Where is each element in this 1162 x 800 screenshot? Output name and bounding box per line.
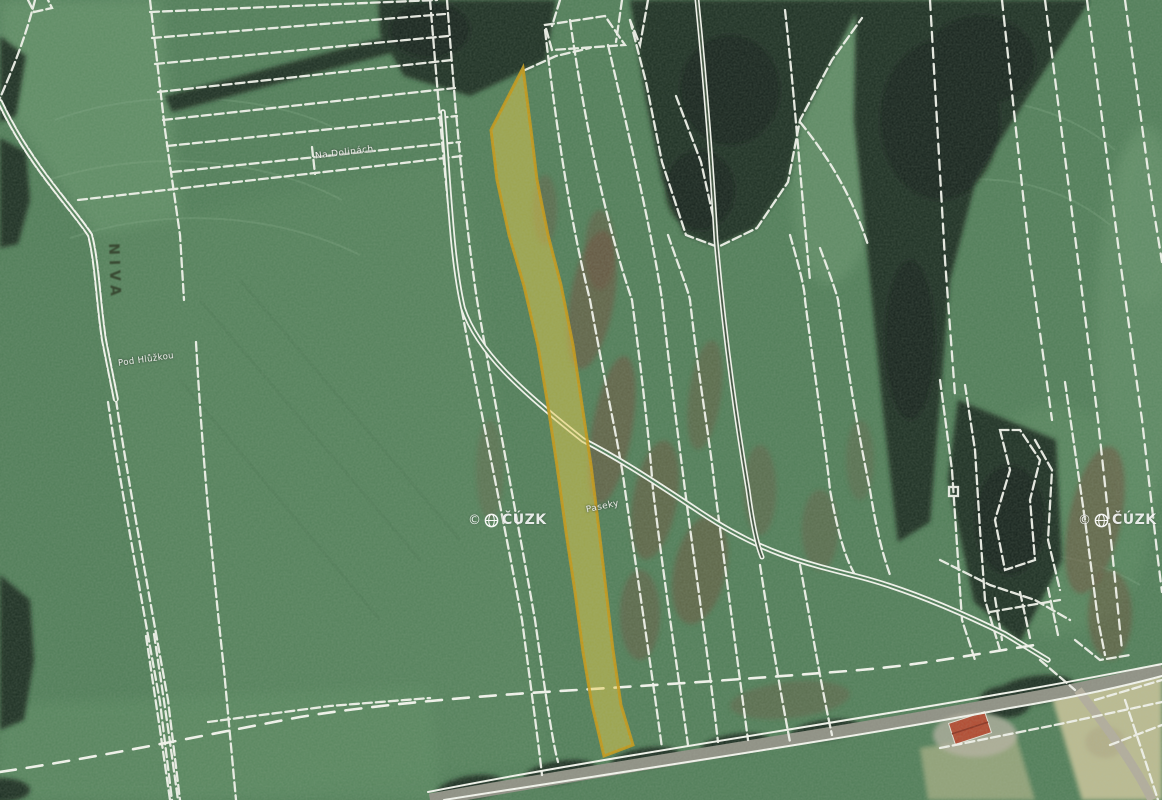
field-label-niva: NIVA [106,243,122,301]
map-canvas[interactable] [0,0,1162,800]
copyright-symbol: © [1078,513,1091,528]
cuzk-watermark-right: © ČÚZK [1078,512,1157,528]
map-viewport[interactable]: Na Dolinách Pod Hlůžkou NIVA Paseky © ČÚ… [0,0,1162,800]
photo-grain-overlay [0,0,1162,800]
globe-icon [484,513,499,528]
cuzk-text: ČÚZK [502,512,547,528]
globe-icon [1094,513,1109,528]
copyright-symbol: © [468,513,481,528]
cuzk-text: ČÚZK [1112,512,1157,528]
cuzk-watermark-left: © ČÚZK [468,512,547,528]
